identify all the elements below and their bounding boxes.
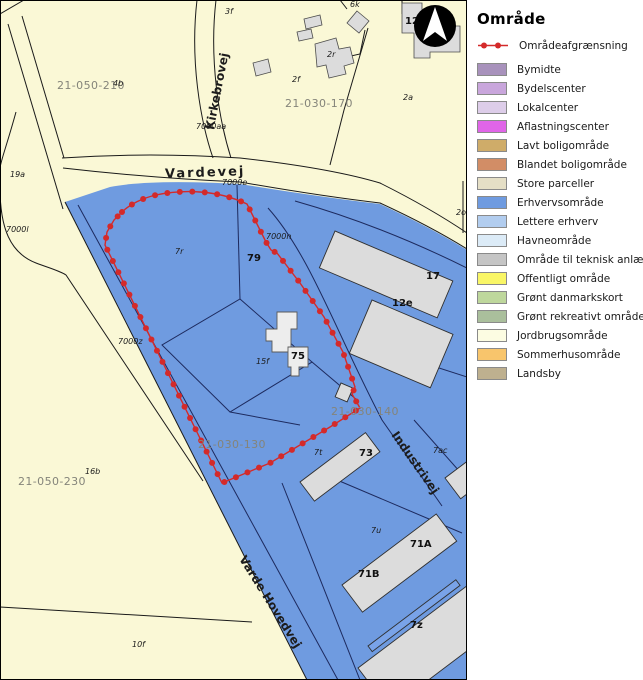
map-label: 79: [247, 253, 261, 264]
boundary-dot: [280, 258, 286, 264]
boundary-dot: [119, 209, 125, 215]
legend-item-label: Område til teknisk anlæg: [517, 254, 643, 266]
legend-item-label: Offentligt område: [517, 273, 610, 285]
boundary-dot: [238, 198, 244, 204]
legend-item-label: Blandet boligområde: [517, 159, 627, 171]
map-label: 3f: [225, 7, 234, 16]
legend-item[interactable]: Erhvervsområde: [477, 193, 643, 212]
legend-item[interactable]: Lavt boligområde: [477, 136, 643, 155]
map-label: 16b: [85, 467, 100, 476]
map-label: 19a: [10, 170, 25, 179]
legend-item-label: Store parceller: [517, 178, 594, 190]
legend-item[interactable]: Grønt danmarkskort: [477, 288, 643, 307]
boundary-dot: [226, 194, 232, 200]
boundary-dot: [176, 393, 182, 399]
boundary-dot: [300, 440, 306, 446]
legend-item-label: Sommerhusområde: [517, 349, 620, 361]
legend-item[interactable]: Bymidte: [477, 60, 643, 79]
legend-color-chip: [477, 329, 507, 342]
map-label: 7000z: [118, 337, 143, 346]
legend-color-chip: [477, 253, 507, 266]
boundary-dot: [349, 376, 355, 382]
map-label: 7r: [175, 247, 184, 256]
north-arrow-compass: [414, 5, 456, 47]
legend-color-chip: [477, 139, 507, 152]
legend-items: BymidteBydelscenterLokalcenterAflastning…: [477, 60, 643, 383]
map-label: 71B: [358, 569, 380, 580]
boundary-dot: [215, 471, 221, 477]
legend-item-label: Landsby: [517, 368, 561, 380]
boundary-dot: [341, 352, 347, 358]
legend-color-chip: [477, 196, 507, 209]
boundary-dot: [104, 247, 110, 253]
map-label: 75: [291, 351, 305, 362]
legend-item-label: Aflastningscenter: [517, 121, 609, 133]
legend-color-chip: [477, 120, 507, 133]
map-label: 21-030-170: [285, 97, 353, 110]
boundary-dot: [137, 314, 143, 320]
boundary-dot: [258, 229, 264, 235]
map-label: 7000n: [266, 232, 291, 241]
map-label: 10f: [132, 640, 146, 649]
legend-item-label: Lokalcenter: [517, 102, 578, 114]
boundary-dot: [244, 469, 250, 475]
legend-item[interactable]: Landsby: [477, 364, 643, 383]
boundary-dot: [332, 421, 338, 427]
legend-item[interactable]: Grønt rekreativt område: [477, 307, 643, 326]
map-label: 15f: [256, 357, 270, 366]
legend-item-label: Bydelscenter: [517, 83, 586, 95]
boundary-dot: [268, 460, 274, 466]
boundary-dot: [148, 336, 154, 342]
boundary-dot: [351, 387, 357, 393]
boundary-dot: [140, 196, 146, 202]
boundary-dot: [353, 398, 359, 404]
boundary-dot: [177, 189, 183, 195]
legend-item-label: Bymidte: [517, 64, 561, 76]
boundary-dot: [209, 460, 215, 466]
map-area[interactable]: 21-050-2104b3f2r2f21-030-1702a2o126k19a7…: [0, 0, 467, 680]
legend-panel: Område Områdeafgrænsning BymidteBydelsce…: [467, 0, 643, 680]
legend-item[interactable]: Havneområde: [477, 231, 643, 250]
legend-color-chip: [477, 82, 507, 95]
legend-color-chip: [477, 348, 507, 361]
legend-item-label: Grønt danmarkskort: [517, 292, 623, 304]
map-label: Vardevej: [165, 164, 246, 182]
boundary-dot: [214, 191, 220, 197]
legend-color-chip: [477, 63, 507, 76]
legend-item-label: Lettere erhverv: [517, 216, 598, 228]
boundary-dot: [310, 298, 316, 304]
map-label: 7ac: [433, 446, 448, 455]
boundary-dot: [310, 434, 316, 440]
legend-item-boundary[interactable]: Områdeafgrænsning: [477, 36, 643, 55]
legend-item-label: Erhvervsområde: [517, 197, 604, 209]
boundary-dot: [171, 381, 177, 387]
boundary-dot: [126, 292, 132, 298]
boundary-dot: [107, 223, 113, 229]
map-label: 73: [359, 448, 373, 459]
legend-color-chip: [477, 367, 507, 380]
boundary-dot: [324, 319, 330, 325]
boundary-dot: [187, 415, 193, 421]
boundary-dot: [295, 278, 301, 284]
legend-item-label: Jordbrugsområde: [517, 330, 608, 342]
boundary-dot: [121, 280, 127, 286]
legend-item[interactable]: Aflastningscenter: [477, 117, 643, 136]
legend-item-label: Grønt rekreativt område: [517, 311, 643, 323]
boundary-line-icon: [477, 39, 509, 52]
boundary-dot: [165, 370, 171, 376]
legend-item[interactable]: Område til teknisk anlæg: [477, 250, 643, 269]
legend-color-chip: [477, 215, 507, 228]
map-label: 7t: [314, 448, 323, 457]
map-label: 7000l: [6, 225, 29, 234]
legend-color-chip: [477, 158, 507, 171]
boundary-dot: [221, 479, 227, 485]
map-label: 2a: [403, 93, 413, 102]
boundary-dot: [182, 404, 188, 410]
boundary-dot: [159, 359, 165, 365]
map-label: 17: [426, 271, 440, 282]
legend-item-label: Lavt boligområde: [517, 140, 609, 152]
boundary-dot: [103, 235, 109, 241]
legend-item[interactable]: Blandet boligområde: [477, 155, 643, 174]
boundary-dot: [345, 364, 351, 370]
legend-title: Område: [477, 10, 643, 28]
boundary-dot: [154, 348, 160, 354]
map-label: 2o: [456, 208, 466, 217]
map-canvas[interactable]: 21-050-2104b3f2r2f21-030-1702a2o126k19a7…: [0, 0, 467, 680]
legend-color-chip: [477, 234, 507, 247]
legend-color-chip: [477, 101, 507, 114]
boundary-dot: [289, 447, 295, 453]
boundary-dot: [233, 474, 239, 480]
legend-item[interactable]: Sommerhusområde: [477, 345, 643, 364]
map-label: 71A: [410, 539, 432, 550]
boundary-dot: [132, 303, 138, 309]
legend-item[interactable]: Store parceller: [477, 174, 643, 193]
map-label: 4b: [113, 79, 123, 88]
boundary-dot: [317, 308, 323, 314]
boundary-dot: [129, 201, 135, 207]
map-label: 6k: [350, 0, 360, 9]
boundary-dot: [303, 288, 309, 294]
boundary-dot: [321, 428, 327, 434]
legend-color-chip: [477, 310, 507, 323]
boundary-dot: [252, 218, 258, 224]
map-label: 21-030-140: [331, 405, 399, 418]
map-label: 2r: [327, 50, 336, 59]
boundary-dot: [143, 325, 149, 331]
legend-item[interactable]: Lettere erhverv: [477, 212, 643, 231]
map-label: 7z: [410, 620, 423, 631]
boundary-dot: [115, 269, 121, 275]
map-label: 21-050-230: [18, 475, 86, 488]
legend-item[interactable]: Lokalcenter: [477, 98, 643, 117]
boundary-dot: [152, 192, 158, 198]
boundary-dot: [202, 189, 208, 195]
boundary-dot: [288, 268, 294, 274]
boundary-dot: [330, 330, 336, 336]
boundary-dot: [336, 341, 342, 347]
legend-color-chip: [477, 291, 507, 304]
map-label: 7u: [371, 526, 381, 535]
legend-color-chip: [477, 177, 507, 190]
legend-color-chip: [477, 272, 507, 285]
boundary-dot: [193, 426, 199, 432]
map-label: 12e: [392, 298, 413, 309]
legend-item[interactable]: Offentligt område: [477, 269, 643, 288]
legend-item-label: Havneområde: [517, 235, 591, 247]
legend-item-label: Områdeafgrænsning: [519, 40, 628, 52]
boundary-dot: [189, 189, 195, 195]
planning-map-view: 21-050-2104b3f2r2f21-030-1702a2o126k19a7…: [0, 0, 643, 680]
legend-item[interactable]: Bydelscenter: [477, 79, 643, 98]
legend-item[interactable]: Jordbrugsområde: [477, 326, 643, 345]
boundary-dot: [247, 206, 253, 212]
map-label: 2f: [292, 75, 301, 84]
boundary-dot: [278, 453, 284, 459]
map-label: 21-030-130: [198, 438, 266, 451]
boundary-dot: [110, 258, 116, 264]
boundary-dot: [164, 190, 170, 196]
boundary-dot: [115, 213, 121, 219]
boundary-dot: [256, 465, 262, 471]
boundary-dot: [272, 249, 278, 255]
